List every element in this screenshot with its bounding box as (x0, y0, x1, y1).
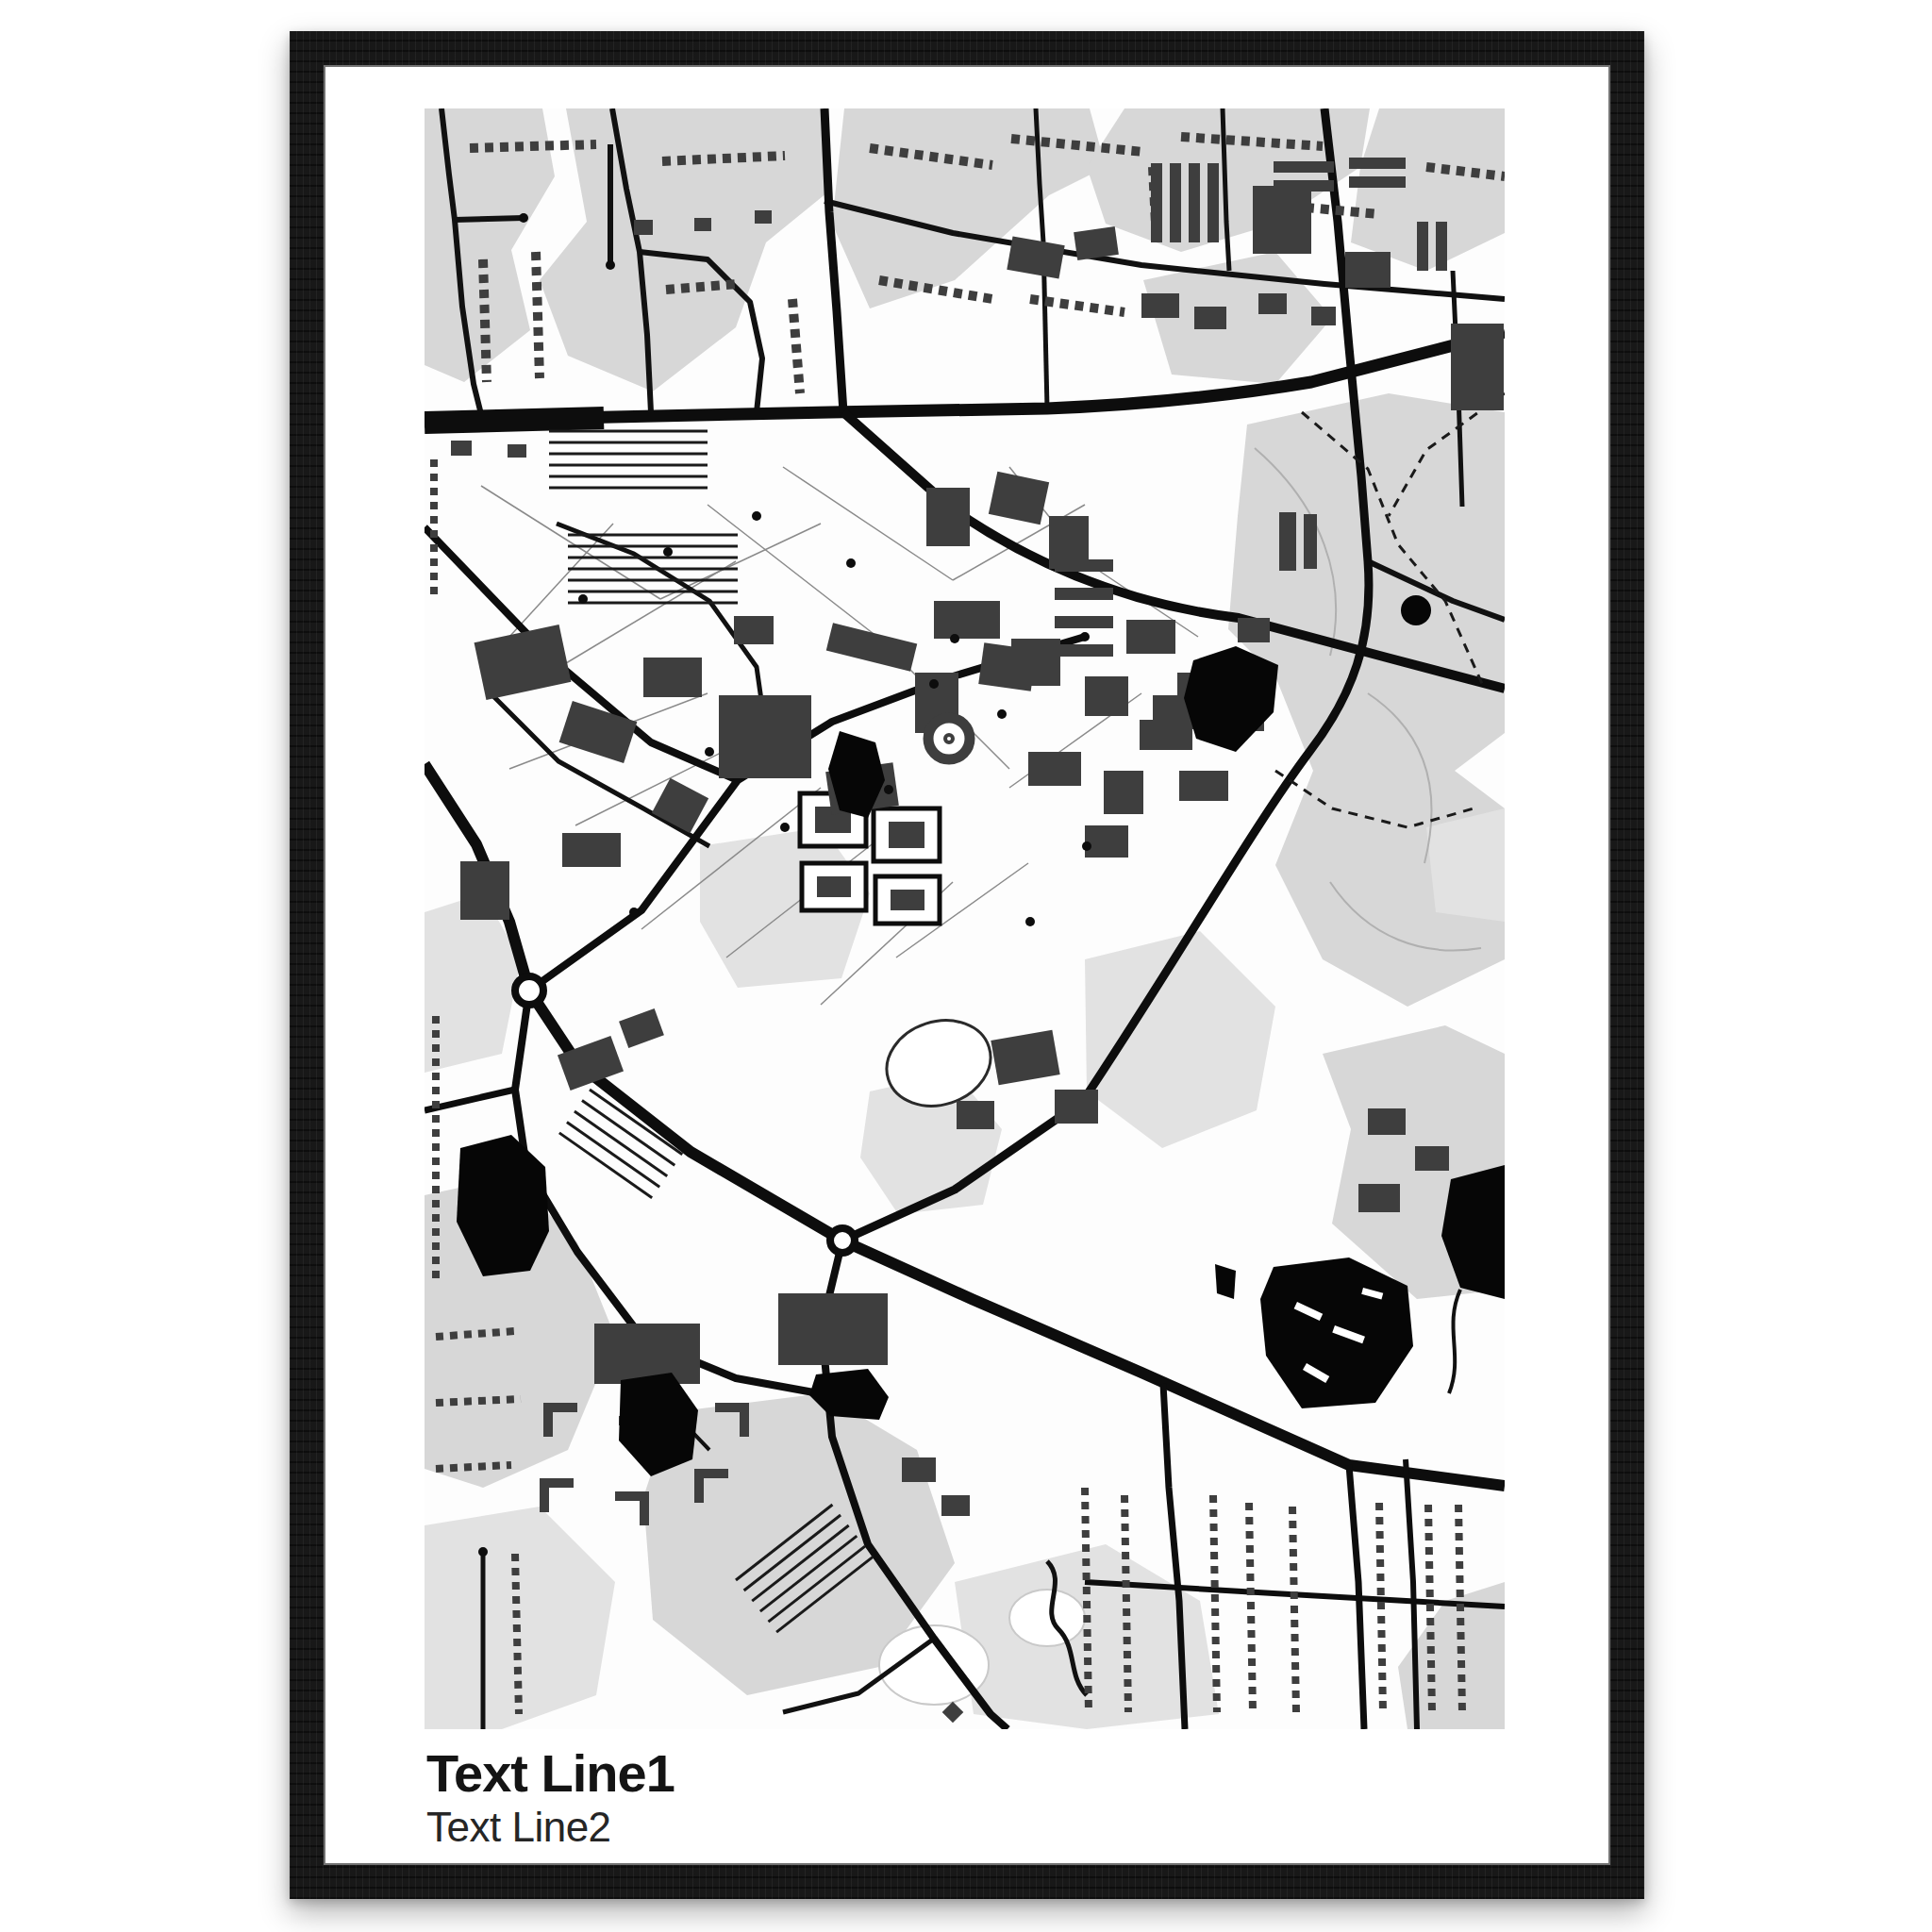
product-mockup-page: Text Line1 Text Line2 (0, 0, 1932, 1932)
poster-caption: Text Line1 Text Line2 (426, 1746, 675, 1849)
poster-mat: Text Line1 Text Line2 (324, 65, 1610, 1865)
poster-subtitle: Text Line2 (426, 1806, 675, 1849)
city-map-graphic (425, 108, 1505, 1729)
map-print (425, 108, 1505, 1729)
poster-frame: Text Line1 Text Line2 (290, 31, 1644, 1899)
poster-title: Text Line1 (426, 1746, 675, 1800)
